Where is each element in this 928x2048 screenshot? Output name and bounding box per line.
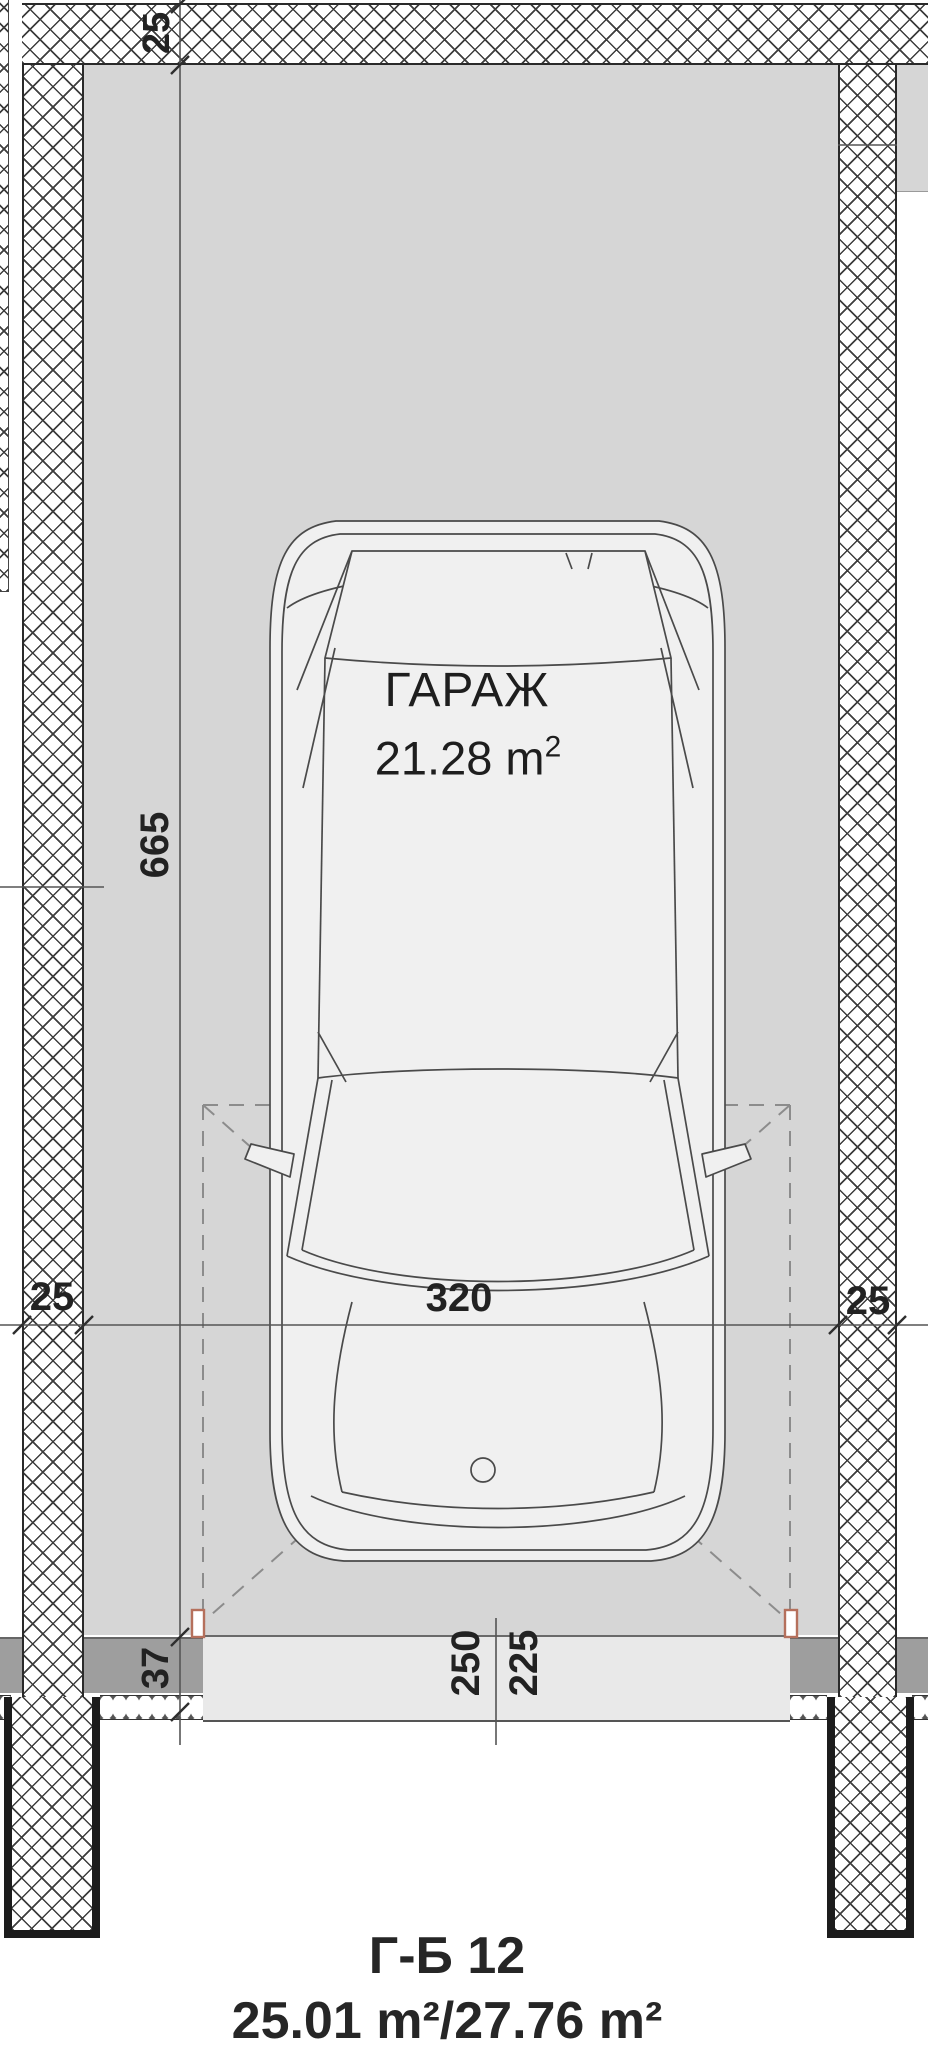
unit-code-title: Г-Б 12 <box>369 1930 525 1982</box>
unit-areas-title: 25.01 m²/27.76 m² <box>232 1995 663 2047</box>
dim-interior-length: 665 <box>135 812 175 879</box>
car-rear-window <box>325 551 671 666</box>
room-area-superscript: 2 <box>545 731 562 764</box>
door-frame-marker-right <box>785 1610 797 1637</box>
door-frame-marker-left <box>192 1610 204 1637</box>
room-area-value: 21.28 m <box>375 732 545 785</box>
dim-threshold-depth: 37 <box>137 1647 175 1689</box>
dim-left-wall-thickness: 25 <box>30 1277 75 1317</box>
dim-right-wall-thickness: 25 <box>846 1281 891 1321</box>
dim-door-clear-opening: 225 <box>504 1630 544 1697</box>
dim-interior-width: 320 <box>426 1278 493 1318</box>
dim-top-wall-thickness: 25 <box>138 12 176 54</box>
floor-plan-canvas: 25 665 25 320 25 37 250 225 ГАРАЖ 21.28 … <box>0 0 928 2048</box>
dim-door-opening: 250 <box>446 1630 486 1697</box>
plan-linework <box>0 0 928 2048</box>
door-frame-markers <box>192 1610 797 1637</box>
room-name-label: ГАРАЖ <box>385 667 550 715</box>
room-area-label: 21.28 m2 <box>375 733 562 782</box>
